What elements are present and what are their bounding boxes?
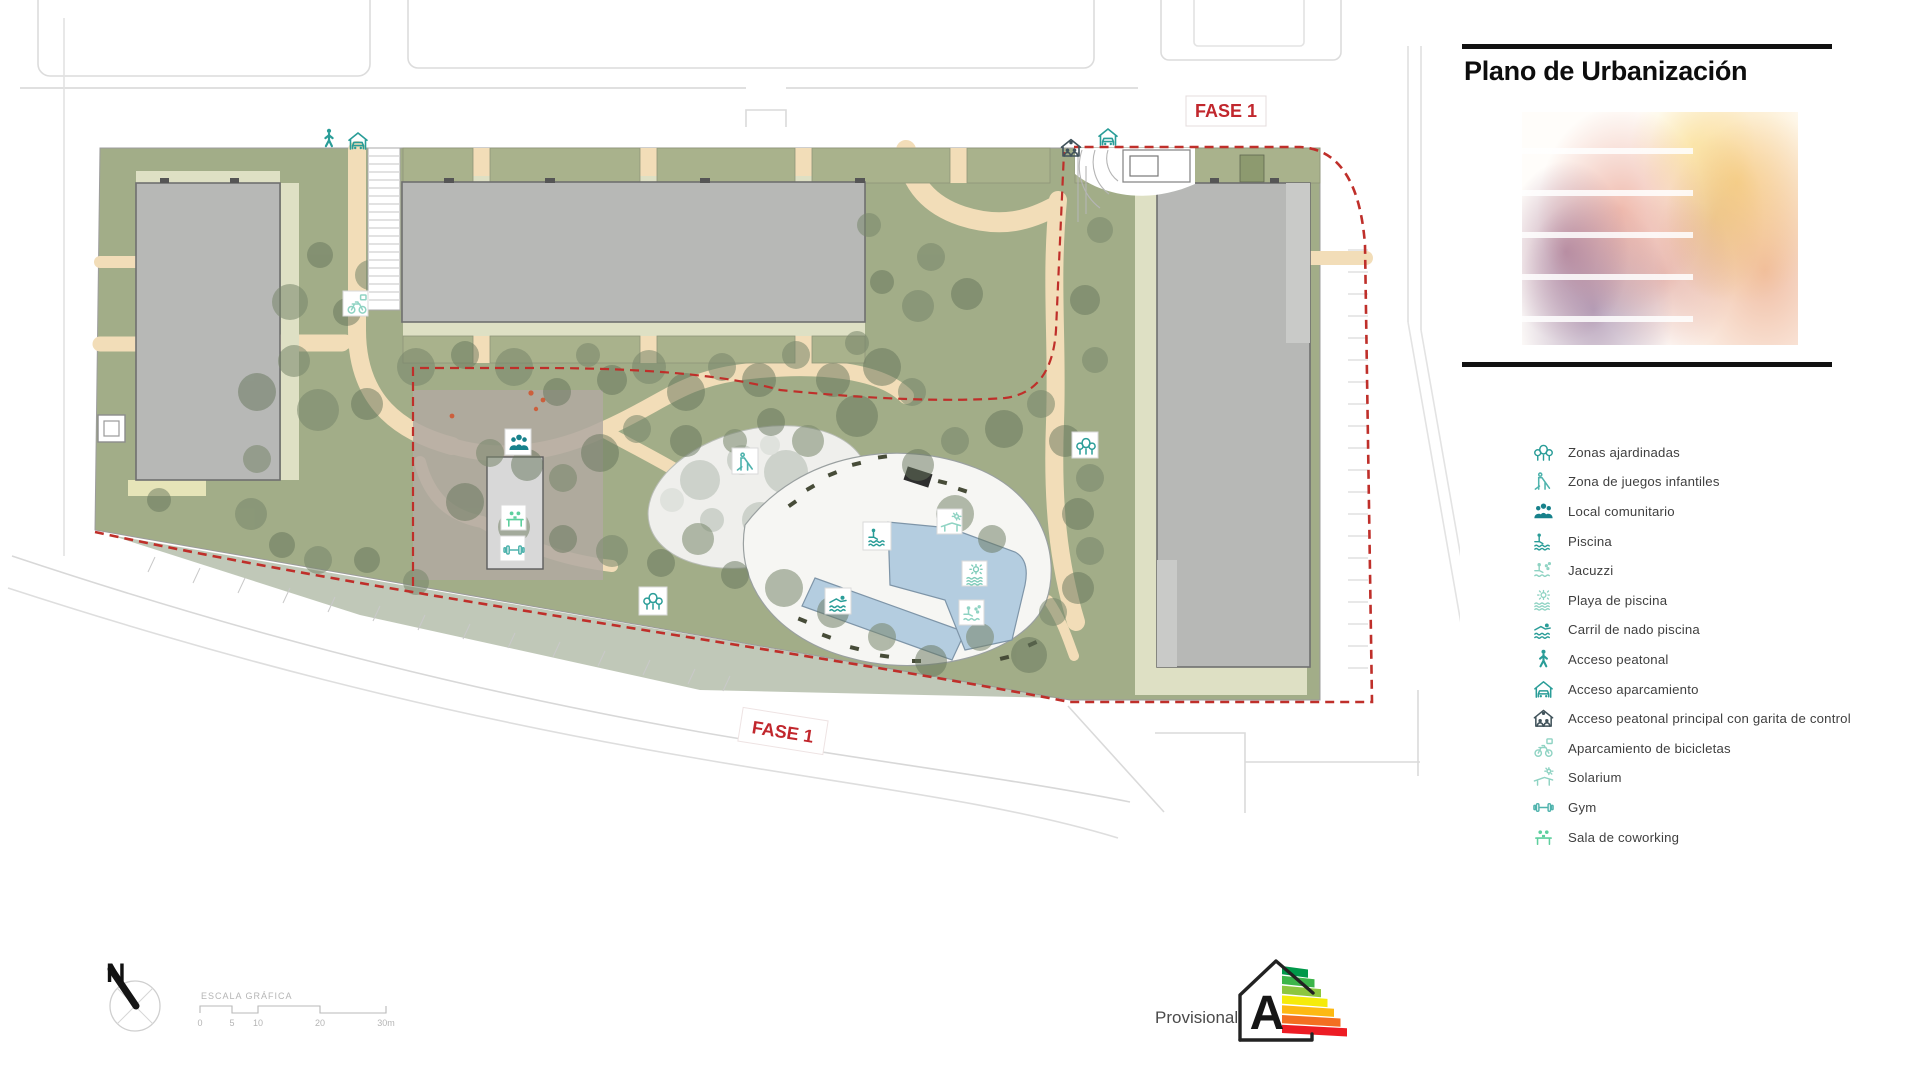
legend-item: Solarium — [1532, 766, 1851, 791]
urbanization-plan-sheet: FASE 1 FASE 1 — [0, 0, 1920, 1080]
title-rule-top — [1462, 44, 1832, 49]
coworking-map-icon — [501, 505, 526, 530]
legend-item: Jacuzzi — [1532, 558, 1851, 583]
legend-item: Acceso aparcamiento — [1532, 677, 1851, 702]
site-plan: FASE 1 FASE 1 — [0, 0, 1460, 1080]
legend-item-label: Acceso peatonal — [1568, 652, 1669, 667]
legend-item: Local comunitario — [1532, 499, 1851, 524]
svg-text:N: N — [106, 958, 126, 988]
beach-map-icon — [962, 561, 987, 586]
trees-icon — [1532, 441, 1555, 464]
info-panel: Plano de Urbanización Zonas ajardinadas … — [1462, 0, 1834, 1080]
legend-item: Carril de nado piscina — [1532, 618, 1851, 643]
energy-rating: Provisional A — [1155, 961, 1347, 1040]
page-title: Plano de Urbanización — [1464, 56, 1834, 87]
north-arrow: N — [106, 958, 160, 1031]
garden-map-icon — [1072, 432, 1098, 458]
playground-map-icon — [732, 448, 758, 474]
dumbbell-icon — [1532, 796, 1555, 819]
svg-text:10: 10 — [253, 1018, 263, 1028]
title-rule-bottom — [1462, 362, 1832, 367]
legend-item-label: Acceso aparcamiento — [1568, 682, 1699, 697]
people-group-icon — [1532, 500, 1555, 523]
garden-map-icon — [639, 587, 667, 615]
legend-item: Zonas ajardinadas — [1532, 440, 1851, 465]
svg-text:30m: 30m — [377, 1018, 395, 1028]
jacuzzi-map-icon — [959, 600, 984, 625]
svg-text:ESCALA GRÁFICA: ESCALA GRÁFICA — [201, 991, 293, 1001]
gym-map-icon — [500, 536, 525, 561]
legend-item-label: Zona de juegos infantiles — [1568, 474, 1720, 489]
legend-item-label: Acceso peatonal principal con garita de … — [1568, 711, 1851, 726]
legend-item-label: Aparcamiento de bicicletas — [1568, 741, 1731, 756]
fase-label-bottom: FASE 1 — [738, 707, 828, 754]
utility-box — [98, 415, 125, 442]
pedestrian-access-icon — [325, 129, 332, 146]
legend-item-label: Gym — [1568, 800, 1596, 815]
building-north — [402, 182, 865, 322]
urbanization-render-image — [1522, 112, 1798, 345]
legend-item-label: Piscina — [1568, 534, 1612, 549]
legend-item-label: Local comunitario — [1568, 504, 1675, 519]
swim-lane-map-icon — [825, 588, 851, 614]
legend-item: Piscina — [1532, 529, 1851, 554]
building-west — [136, 183, 280, 480]
legend-item: Gym — [1532, 795, 1851, 820]
bike-parking-icon — [343, 291, 368, 316]
svg-text:20: 20 — [315, 1018, 325, 1028]
lounger-sun-icon — [1532, 766, 1555, 789]
svg-text:FASE 1: FASE 1 — [1195, 101, 1257, 121]
legend-item: Acceso peatonal principal con garita de … — [1532, 706, 1851, 731]
scale-bar: ESCALA GRÁFICA 0 5 10 20 30m — [197, 991, 394, 1028]
ramp-west — [368, 148, 400, 310]
pedestrian-icon — [1532, 648, 1555, 671]
solarium-map-icon — [937, 509, 962, 534]
community-icon — [505, 429, 531, 455]
legend-item-label: Carril de nado piscina — [1568, 622, 1700, 637]
legend-item: Sala de coworking — [1532, 825, 1851, 850]
legend: Zonas ajardinadas Zona de juegos infanti… — [1532, 440, 1851, 849]
parking-access-icon — [1099, 129, 1117, 145]
jacuzzi-icon — [1532, 559, 1555, 582]
legend-item: Zona de juegos infantiles — [1532, 470, 1851, 495]
svg-text:0: 0 — [197, 1018, 202, 1028]
playground-slide-icon — [1532, 470, 1555, 493]
bicycle-icon — [1532, 737, 1555, 760]
legend-item-label: Jacuzzi — [1568, 563, 1613, 578]
carport-icon — [1532, 678, 1555, 701]
legend-item: Aparcamiento de bicicletas — [1532, 736, 1851, 761]
guardhouse-icon — [1532, 707, 1555, 730]
coworking-icon — [1532, 826, 1555, 849]
pool-map-icon — [863, 522, 891, 550]
legend-item-label: Playa de piscina — [1568, 593, 1667, 608]
legend-item-label: Solarium — [1568, 770, 1622, 785]
pool-person-icon — [1532, 530, 1555, 553]
legend-item-label: Sala de coworking — [1568, 830, 1679, 845]
swimmer-icon — [1532, 618, 1555, 641]
svg-text:A: A — [1250, 987, 1285, 1040]
legend-item: Acceso peatonal — [1532, 647, 1851, 672]
legend-item-label: Zonas ajardinadas — [1568, 445, 1680, 460]
legend-item: Playa de piscina — [1532, 588, 1851, 613]
svg-text:5: 5 — [229, 1018, 234, 1028]
sun-waves-icon — [1532, 589, 1555, 612]
fase-label-top: FASE 1 — [1186, 96, 1266, 126]
svg-text:Provisional: Provisional — [1155, 1008, 1238, 1027]
